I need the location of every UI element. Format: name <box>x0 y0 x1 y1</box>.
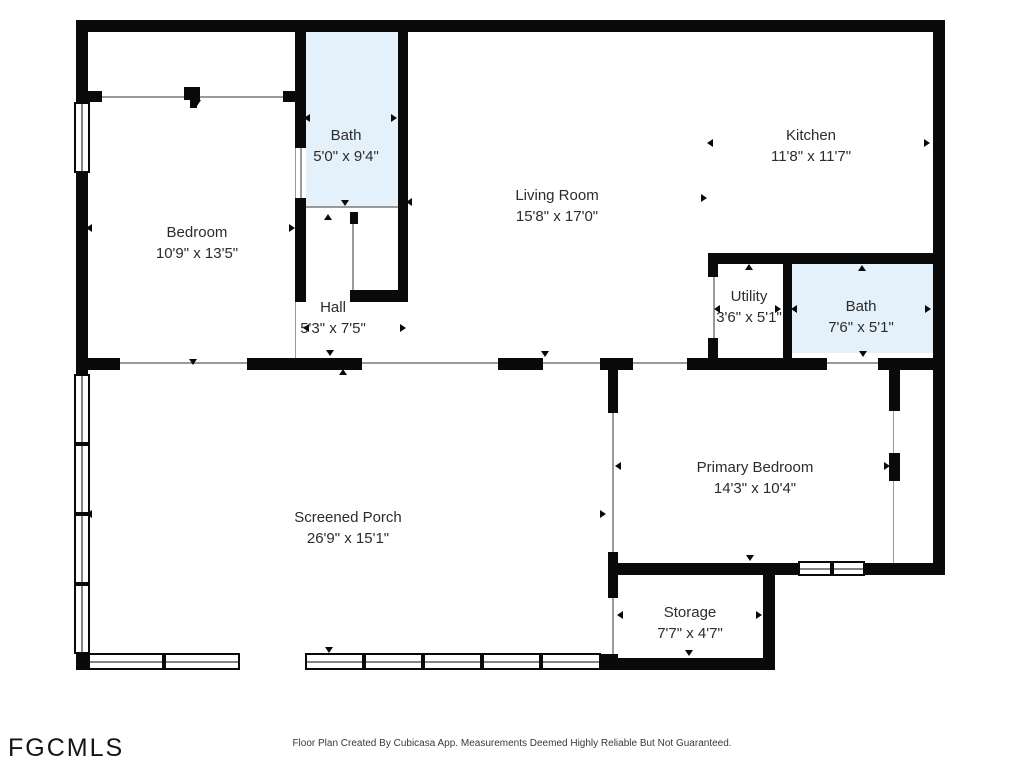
door-arrow-icon <box>701 194 707 202</box>
door-arrow-icon <box>746 555 754 561</box>
room-dimensions: 3'6" x 5'1" <box>716 307 782 328</box>
wall-bath1-left-upper <box>295 32 306 148</box>
opening-line <box>120 362 247 364</box>
wall-bath1-right <box>398 20 408 302</box>
bath1-floor <box>306 32 398 207</box>
room-label-hall: Hall 5'3" x 7'5" <box>300 297 366 339</box>
door-arrow-icon <box>600 510 606 518</box>
room-label-bath-1: Bath 5'0" x 9'4" <box>313 125 379 167</box>
wall-primary-bottom-left <box>617 563 798 575</box>
window-symbol <box>164 653 240 670</box>
room-label-bath-2: Bath 7'6" x 5'1" <box>828 296 894 338</box>
opening-line <box>306 206 398 208</box>
room-dimensions: 14'3" x 10'4" <box>697 478 814 499</box>
door-arrow-icon <box>791 305 797 313</box>
door-arrow-icon <box>553 25 561 31</box>
wall-segment <box>78 358 120 370</box>
wall-porch-corner <box>76 654 88 670</box>
window-symbol <box>74 102 90 173</box>
door-arrow-icon <box>816 25 824 31</box>
door-arrow-icon <box>189 359 197 365</box>
room-label-primary-bedroom: Primary Bedroom 14'3" x 10'4" <box>697 457 814 499</box>
opening-line <box>362 362 498 364</box>
room-name: Primary Bedroom <box>697 457 814 478</box>
door-arrow-icon <box>289 224 295 232</box>
opening-line <box>543 362 600 364</box>
room-dimensions: 7'7" x 4'7" <box>657 623 723 644</box>
wall-utility-left-tab-lower <box>708 338 718 358</box>
window-symbol <box>74 514 90 584</box>
room-label-living-room: Living Room 15'8" x 17'0" <box>515 185 598 227</box>
door-arrow-icon <box>884 462 890 470</box>
window-symbol <box>423 653 482 670</box>
door-arrow-icon <box>326 350 334 356</box>
door-arrow-icon <box>341 200 349 206</box>
wall-utility-top <box>708 253 945 264</box>
wall-closet-tab-mid <box>184 87 200 100</box>
room-label-screened-porch: Screened Porch 26'9" x 15'1" <box>294 507 402 549</box>
door-arrow-icon <box>86 224 92 232</box>
footer-disclaimer: Floor Plan Created By Cubicasa App. Meas… <box>0 738 1024 749</box>
window-symbol <box>74 374 90 444</box>
wall-left-mid <box>76 172 88 374</box>
door-arrow-icon <box>775 305 781 313</box>
door-arrow-icon <box>751 363 759 369</box>
door-arrow-icon <box>541 351 549 357</box>
door-arrow-icon <box>615 462 621 470</box>
wall-right <box>933 20 945 575</box>
room-name: Hall <box>300 297 366 318</box>
room-dimensions: 11'8" x 11'7" <box>771 146 851 167</box>
opening-line <box>300 148 302 198</box>
wall-utility-left-tab-upper <box>708 264 718 277</box>
door-arrow-icon <box>714 305 720 313</box>
wall-segment <box>498 358 543 370</box>
room-dimensions: 10'9" x 13'5" <box>156 243 238 264</box>
wall-primary-right-seg1 <box>889 363 900 411</box>
door-arrow-icon <box>193 100 201 106</box>
wall-top <box>78 20 945 32</box>
door-arrow-icon <box>707 139 713 147</box>
door-arrow-icon <box>400 324 406 332</box>
wall-bath1-left-lower <box>295 198 306 302</box>
room-dimensions: 15'8" x 17'0" <box>515 206 598 227</box>
room-dimensions: 5'0" x 9'4" <box>313 146 379 167</box>
wall-closet-tab <box>350 212 358 224</box>
room-boundary-line <box>893 481 894 563</box>
wall-primary-right-seg2 <box>889 453 900 481</box>
window-symbol <box>88 653 164 670</box>
door-arrow-icon <box>303 324 309 332</box>
door-arrow-icon <box>818 253 826 259</box>
opening-line <box>633 362 687 364</box>
room-label-kitchen: Kitchen 11'8" x 11'7" <box>771 125 851 167</box>
room-dimensions: 7'6" x 5'1" <box>828 317 894 338</box>
window-symbol <box>832 561 865 576</box>
opening-line <box>612 413 614 552</box>
door-arrow-icon <box>304 114 310 122</box>
room-name: Screened Porch <box>294 507 402 528</box>
opening-line <box>612 598 614 655</box>
opening-line <box>827 362 878 364</box>
room-name: Living Room <box>515 185 598 206</box>
wall-closet-cap-left <box>88 91 102 102</box>
wall-closet-cap-right <box>283 91 297 102</box>
floor-plan-canvas: Bedroom 10'9" x 13'5" Bath 5'0" x 9'4" H… <box>0 0 1024 700</box>
room-name: Bedroom <box>156 222 238 243</box>
wall-divider-mid <box>608 552 618 598</box>
door-arrow-icon <box>325 647 333 653</box>
wall-divider-upper <box>608 358 618 413</box>
door-arrow-icon <box>341 24 349 30</box>
door-arrow-icon <box>406 198 412 206</box>
door-arrow-icon <box>324 214 332 220</box>
room-name: Storage <box>657 602 723 623</box>
wall-storage-right <box>763 575 775 670</box>
door-arrow-icon <box>858 265 866 271</box>
door-arrow-icon <box>86 510 92 518</box>
window-symbol <box>541 653 601 670</box>
room-name: Bath <box>313 125 379 146</box>
window-symbol <box>364 653 423 670</box>
door-arrow-icon <box>685 650 693 656</box>
window-symbol <box>798 561 832 576</box>
room-name: Kitchen <box>771 125 851 146</box>
door-arrow-icon <box>756 611 762 619</box>
door-arrow-icon <box>685 569 693 575</box>
door-arrow-icon <box>617 611 623 619</box>
door-arrow-icon <box>925 305 931 313</box>
room-dimensions: 5'3" x 7'5" <box>300 318 366 339</box>
door-arrow-icon <box>924 139 930 147</box>
opening-line <box>352 224 354 290</box>
door-arrow-icon <box>859 351 867 357</box>
door-arrow-icon <box>391 114 397 122</box>
window-symbol <box>482 653 541 670</box>
room-label-utility: Utility 3'6" x 5'1" <box>716 286 782 328</box>
window-symbol <box>74 444 90 514</box>
door-arrow-icon <box>745 264 753 270</box>
room-boundary-line <box>893 411 894 453</box>
door-arrow-icon <box>339 369 347 375</box>
wall-primary-bottom-right <box>865 563 945 575</box>
room-dimensions: 26'9" x 15'1" <box>294 528 402 549</box>
room-label-storage: Storage 7'7" x 4'7" <box>657 602 723 644</box>
wall-left-upper <box>76 20 88 105</box>
room-name: Bath <box>828 296 894 317</box>
room-label-bedroom: Bedroom 10'9" x 13'5" <box>156 222 238 264</box>
window-symbol <box>74 584 90 654</box>
window-symbol <box>305 653 364 670</box>
wall-storage-bottom <box>608 658 775 670</box>
room-name: Utility <box>716 286 782 307</box>
